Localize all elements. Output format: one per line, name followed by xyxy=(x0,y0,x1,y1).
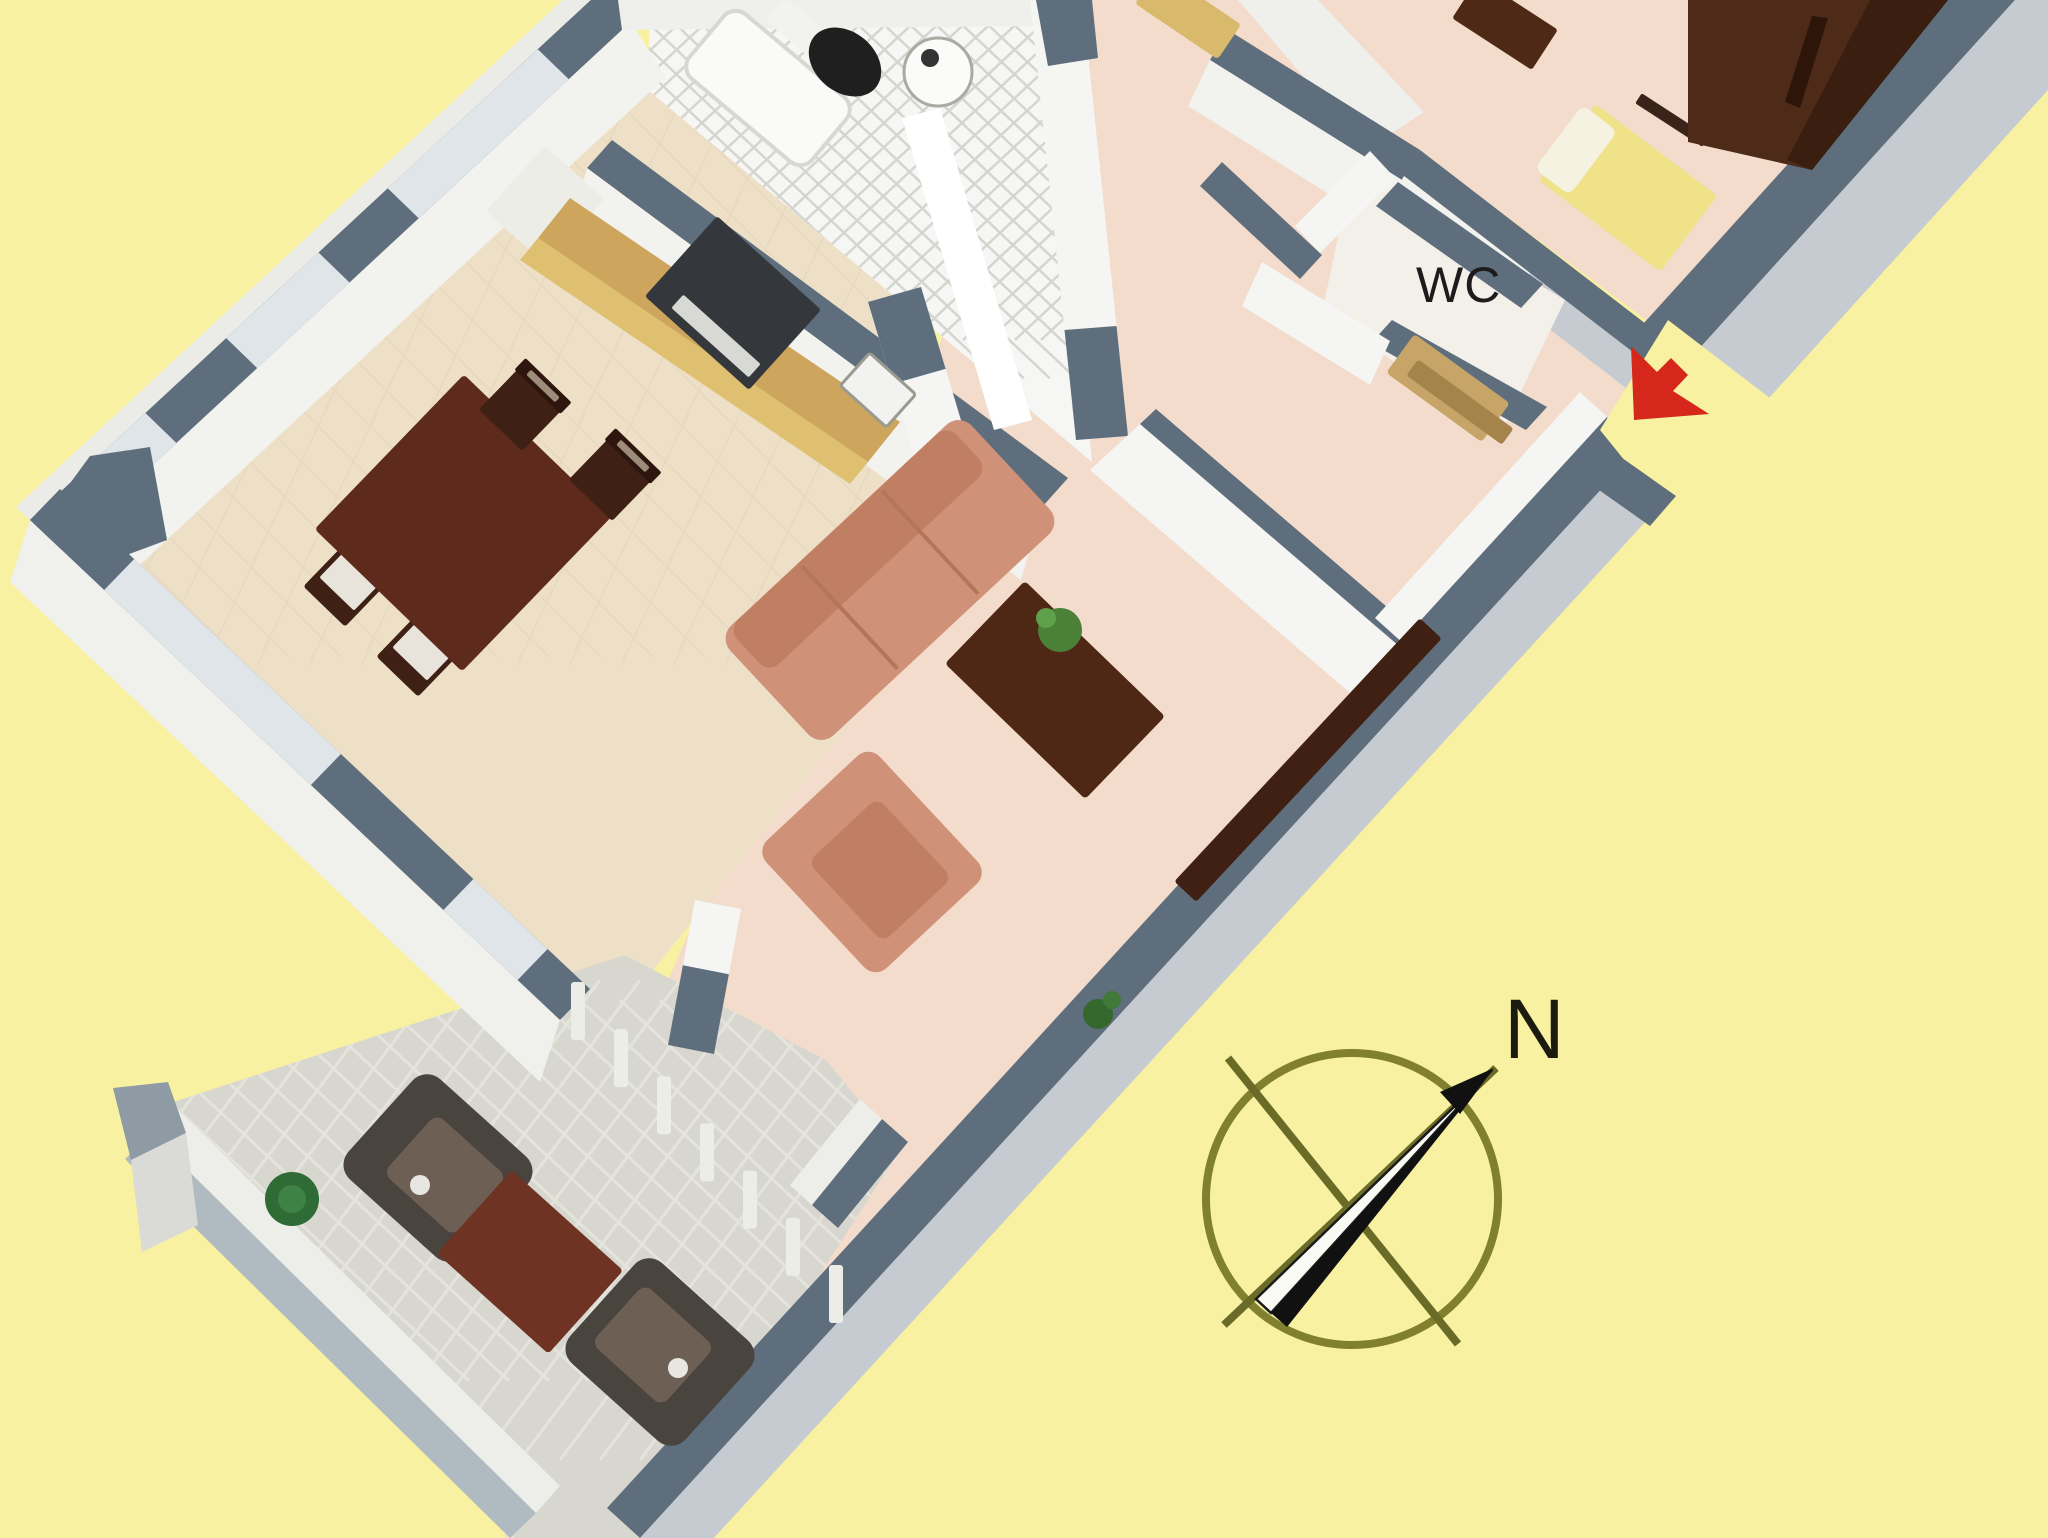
svg-text:N: N xyxy=(1504,982,1565,1076)
svg-text:WC: WC xyxy=(1416,257,1501,313)
